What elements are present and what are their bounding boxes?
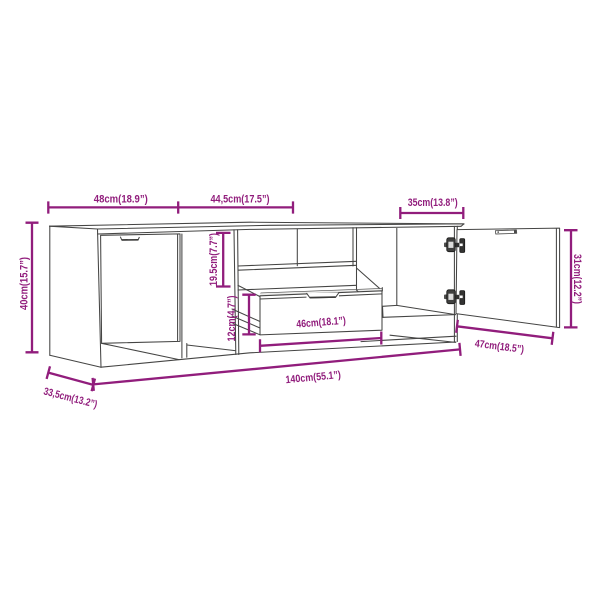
svg-text:19.5cm(7.7”): 19.5cm(7.7”) [208,233,220,286]
svg-text:48cm(18.9”): 48cm(18.9”) [94,194,148,206]
svg-text:31cm(12.2”): 31cm(12.2”) [571,254,583,304]
svg-text:44,5cm(17.5”): 44,5cm(17.5”) [211,194,270,206]
svg-text:12cm(4.7”): 12cm(4.7”) [226,296,238,342]
svg-text:40cm(15.7”): 40cm(15.7”) [18,257,30,310]
svg-text:35cm(13.8”): 35cm(13.8”) [408,197,458,209]
